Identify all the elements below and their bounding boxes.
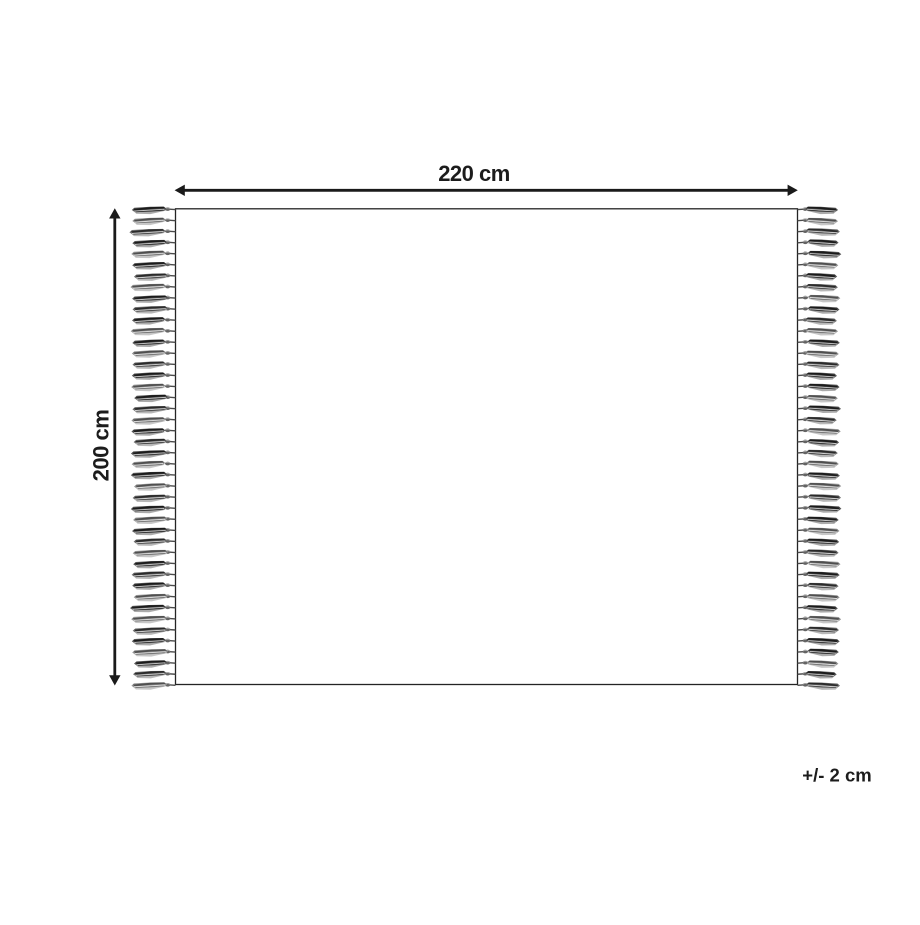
- svg-text:+/- 2 cm: +/- 2 cm: [802, 765, 871, 786]
- svg-text:200 cm: 200 cm: [89, 410, 114, 482]
- svg-text:220 cm: 220 cm: [438, 161, 510, 186]
